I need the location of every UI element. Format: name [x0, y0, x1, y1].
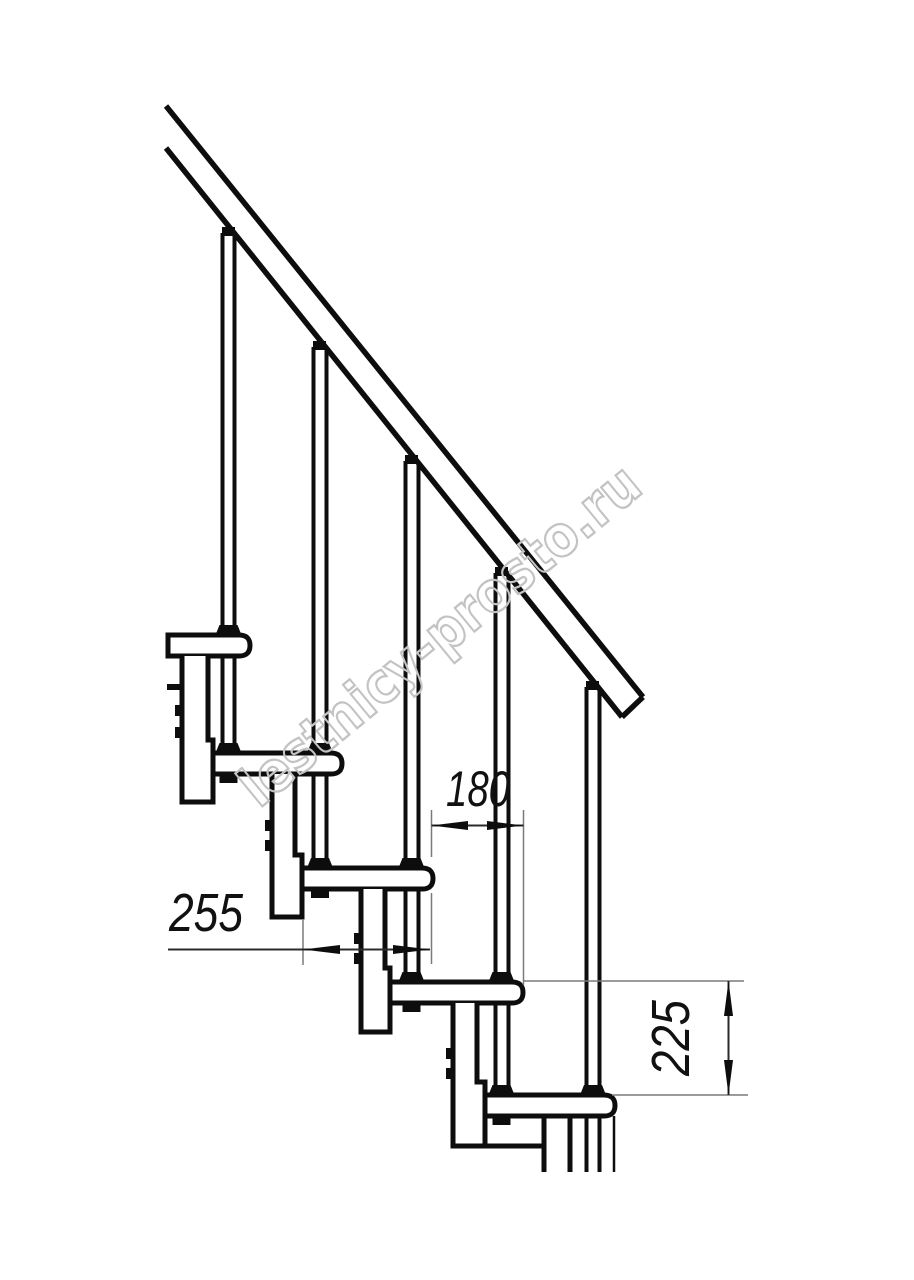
step-tread — [302, 868, 433, 889]
watermark-text: lestnicy-prosto.ru — [227, 452, 654, 820]
handrail-end-cap — [622, 697, 643, 717]
support-column — [453, 1003, 485, 1146]
arrowhead-right-icon — [487, 821, 524, 830]
bracket — [354, 953, 361, 964]
step-tread — [390, 982, 523, 1003]
baluster — [489, 567, 515, 1125]
support-column — [361, 889, 390, 1032]
arrowhead-up-icon — [724, 981, 733, 1016]
baluster — [399, 455, 425, 1012]
arrowhead-left-icon — [303, 945, 340, 954]
bracket — [265, 840, 272, 851]
bracket — [446, 1048, 453, 1059]
dimension-label-225: 225 — [641, 999, 701, 1077]
dimension-225: 225 — [524, 981, 748, 1095]
baluster — [216, 227, 242, 783]
bracket — [354, 933, 361, 944]
bracket — [446, 1068, 453, 1079]
step-tread — [168, 635, 250, 656]
step-tread — [485, 1095, 615, 1116]
arrowhead-down-icon — [724, 1060, 733, 1095]
drawing-canvas: 180 255 225 lestnicy-prosto.ru — [0, 0, 914, 1280]
baluster — [307, 341, 333, 898]
dimension-label-255: 255 — [168, 883, 244, 943]
bracket — [175, 727, 182, 738]
dimension-label-180: 180 — [446, 761, 510, 817]
arrowhead-left-icon — [432, 821, 469, 830]
bracket — [175, 705, 182, 716]
arrowhead-right-icon — [393, 945, 430, 954]
bracket-tab — [167, 684, 182, 690]
bracket — [265, 820, 272, 831]
staircase-technical-drawing: 180 255 225 lestnicy-prosto.ru — [0, 0, 914, 1280]
support-column — [182, 656, 213, 802]
